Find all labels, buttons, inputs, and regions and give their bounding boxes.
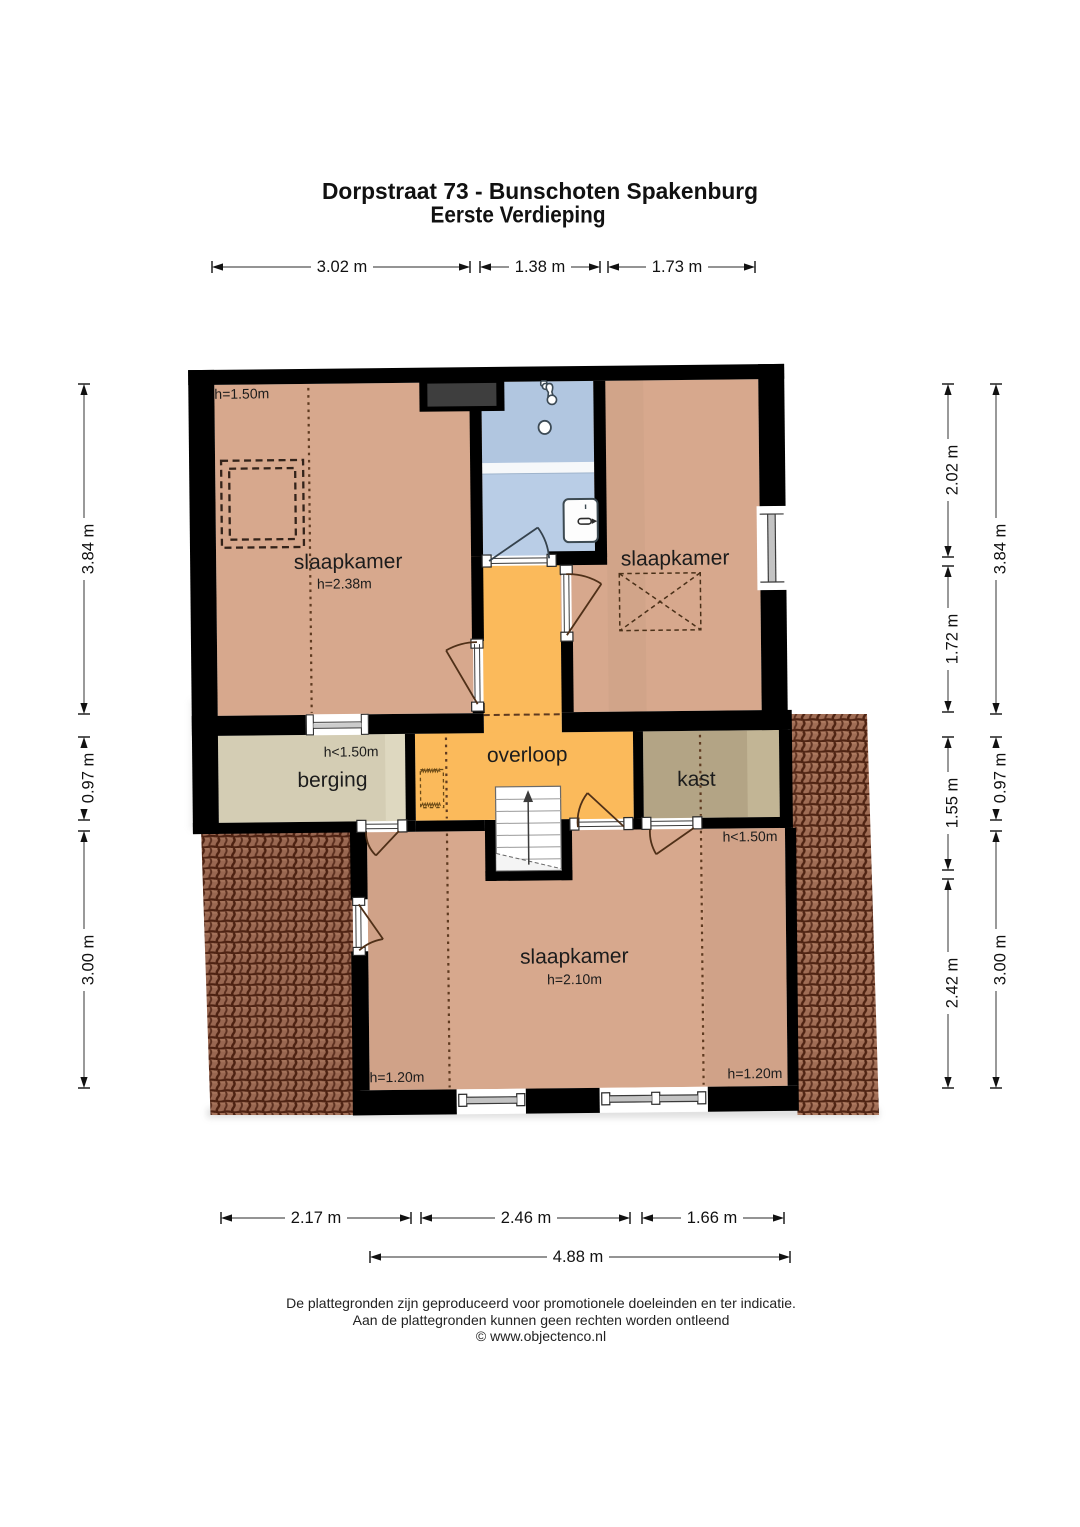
svg-text:1.55 m: 1.55 m [943, 778, 961, 828]
svg-text:berging: berging [297, 768, 367, 792]
svg-text:1.72 m: 1.72 m [943, 614, 961, 664]
svg-text:1.73 m: 1.73 m [652, 258, 702, 276]
svg-text:h=1.20m: h=1.20m [369, 1069, 424, 1086]
svg-text:slaapkamer: slaapkamer [621, 546, 730, 570]
svg-text:0.97 m: 0.97 m [991, 753, 1009, 803]
svg-text:Dorpstraat 73 - Bunschoten Spa: Dorpstraat 73 - Bunschoten Spakenburg [322, 178, 758, 204]
svg-text:2.42 m: 2.42 m [943, 958, 961, 1008]
svg-text:slaapkamer: slaapkamer [294, 550, 403, 574]
svg-text:© www.objectenco.nl: © www.objectenco.nl [476, 1328, 606, 1344]
svg-text:2.46 m: 2.46 m [501, 1209, 551, 1227]
svg-text:3.00 m: 3.00 m [991, 935, 1009, 985]
svg-text:Aan de plattegronden kunnen ge: Aan de plattegronden kunnen geen rechten… [353, 1312, 730, 1328]
svg-text:3.84 m: 3.84 m [991, 524, 1009, 574]
svg-text:Eerste Verdieping: Eerste Verdieping [431, 202, 606, 228]
svg-text:2.17 m: 2.17 m [291, 1209, 341, 1227]
svg-text:1.66 m: 1.66 m [687, 1209, 737, 1227]
svg-text:1.38 m: 1.38 m [515, 258, 565, 276]
svg-text:0.97 m: 0.97 m [79, 753, 97, 803]
svg-text:h<1.50m: h<1.50m [324, 743, 379, 760]
svg-text:h<1.50m: h<1.50m [723, 828, 778, 845]
svg-text:3.02 m: 3.02 m [317, 258, 367, 276]
svg-text:h=2.10m: h=2.10m [547, 971, 602, 988]
svg-text:2.02 m: 2.02 m [943, 445, 961, 495]
svg-text:3.00 m: 3.00 m [79, 935, 97, 985]
svg-text:slaapkamer: slaapkamer [520, 945, 629, 969]
svg-text:h=1.50m: h=1.50m [214, 385, 269, 402]
svg-text:overloop: overloop [487, 743, 568, 767]
svg-text:h=2.38m: h=2.38m [317, 575, 372, 592]
svg-text:h=1.20m: h=1.20m [727, 1065, 782, 1082]
svg-text:kast: kast [677, 768, 716, 791]
svg-text:De plattegronden zijn geproduc: De plattegronden zijn geproduceerd voor … [286, 1295, 796, 1311]
svg-text:4.88 m: 4.88 m [553, 1248, 603, 1266]
svg-text:3.84 m: 3.84 m [79, 524, 97, 574]
